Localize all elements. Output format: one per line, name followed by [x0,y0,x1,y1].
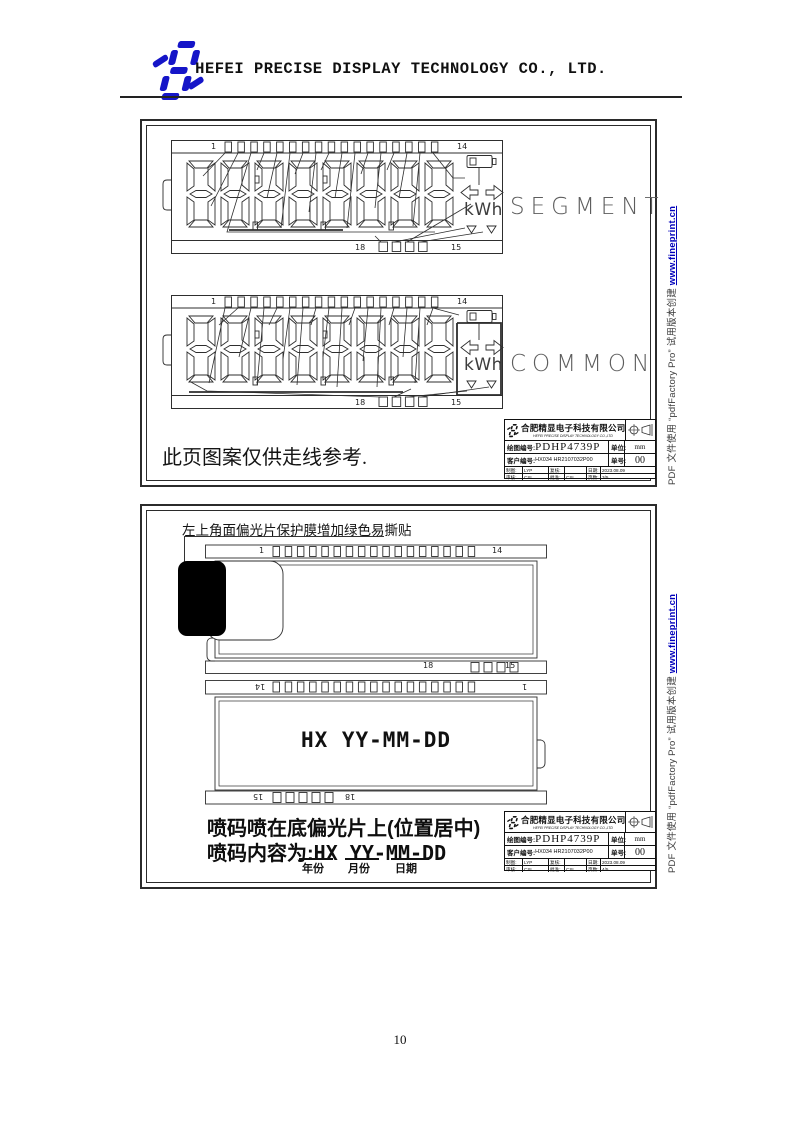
tb-cell: 页数: [586,866,600,872]
kwh-unit-label: kWh [464,202,503,219]
pin-label: 1 [259,546,264,555]
tb-cell: 日期: [586,859,600,865]
date-code-print-text: HX YY-MM-DD [205,728,547,752]
tb-cell: 日期: [586,467,600,473]
company-title: HEFEI PRECISE DISPLAY TECHNOLOGY CO., LT… [120,60,682,78]
pin-label: 15 [505,661,515,670]
battery-icon [467,156,496,168]
customer-no-label: 客户编号: [505,455,535,465]
lcd-common-drawing [161,295,505,409]
customer-no: HX034 HR2107032P00 [535,457,608,463]
day-label: 日期 [395,860,417,876]
tb-company-en: HEFEI PRECISE DISPLAY TECHNOLOGY CO.,LTD [529,825,617,829]
year-label: 年份 [302,860,324,876]
tb-cell: CSL [522,866,548,872]
annotation-underline [184,536,384,537]
projection-symbol-icon [628,815,654,829]
pin-label: 18 [423,661,433,670]
pin-label: 15 [451,243,461,252]
customer-no-label: 客户编号: [505,847,535,857]
watermark-link[interactable]: www.fineprint.cn [667,206,678,285]
pin-label: 1 [211,142,216,151]
tb-page-number: 3/5 [600,474,655,480]
arrow-icons [461,341,503,355]
tb-cell: LYP [522,467,548,473]
tb-company-cn: 合肥精显电子科技有限公司 [521,423,625,433]
tb-company-en: HEFEI PRECISE DISPLAY TECHNOLOGY CO.,LTD [529,433,617,437]
title-block-2: 合肥精显电子科技有限公司 HEFEI PRECISE DISPLAY TECHN… [504,811,656,871]
pdf-page: HEFEI PRECISE DISPLAY TECHNOLOGY CO., LT… [0,0,800,1131]
tb-cell: 制图: [505,467,522,473]
tb-cell: CSL [564,474,586,480]
tb-page-number: 4/5 [600,866,655,872]
tb-cell: 复核: [548,859,564,865]
inkjet-note-2-value: HX YY-MM-DD [314,841,446,865]
pdffactory-watermark: PDF 文件使用 “pdfFactory Pro” 试用版本创建 www.fin… [664,133,678,485]
common-label: COMMON [510,351,655,377]
tb-cell: CSL [564,866,586,872]
pin-label: 14 [457,297,467,306]
company-logo-small-icon [507,815,520,830]
lcd-segment-drawing [161,140,505,254]
pin-label: 1 [522,682,527,691]
watermark-text: PDF 文件使用 “pdfFactory Pro” 试用版本创建 [667,285,678,485]
battery-icon [467,311,496,323]
inkjet-note-2-label: 喷码内容为: [207,843,314,865]
tb-cell [564,467,586,473]
pin-label: 1 [211,297,216,306]
tb-cell: 批准: [548,866,564,872]
tb-cell: LYP [522,859,548,865]
lcd-segment-diagram: 1 14 18 15 kWh [171,140,503,254]
pin-label: 14 [492,546,502,555]
month-label: 月份 [348,860,370,876]
tb-cell: 2023.08.09 [600,859,655,865]
tb-cell: 批准: [548,474,564,480]
page-number: 10 [0,1032,800,1048]
projection-symbol-icon [628,423,654,437]
green-tear-sticker [178,561,226,636]
pin-label: 18 [355,243,365,252]
pin-label: 18 [355,398,365,407]
tb-cell: 2023.08.09 [600,467,655,473]
tb-cell: 复核: [548,467,564,473]
tb-cell: 审核: [505,866,522,872]
watermark-text: PDF 文件使用 “pdfFactory Pro” 试用版本创建 [667,673,678,873]
front-outline-drawing [175,542,547,674]
triangle-indicator-icons [467,381,496,388]
kwh-unit-label: kWh [464,357,503,374]
company-logo-small-icon [507,423,520,438]
customer-no: HX034 HR2107032P00 [535,849,608,855]
seven-segment-digits [187,316,453,382]
drawing-no-label: 绘图编号: [505,442,535,452]
order-value: 00 [624,454,655,466]
drawing-no: PDHP4739P [535,441,608,453]
back-outline-diagram: 14 1 15 18 HX YY-MM-DD [205,680,547,805]
tb-cell: 页数: [586,474,600,480]
pin-label: 14 [457,142,467,151]
title-block-1: 合肥精显电子科技有限公司 HEFEI PRECISE DISPLAY TECHN… [504,419,656,479]
arrow-icons [461,186,503,200]
unit-value: mm [624,441,655,453]
pin-label: 18 [345,792,355,801]
seven-segment-digits [187,161,453,227]
drawing-no-label: 绘图编号: [505,834,535,844]
watermark-link[interactable]: www.fineprint.cn [667,594,678,673]
tb-cell [564,859,586,865]
tb-cell: CSL [522,474,548,480]
pin-label: 14 [255,682,265,691]
drawing-no: PDHP4739P [535,833,608,845]
lcd-common-diagram: 1 14 18 15 kWh [171,295,503,409]
header-divider [120,96,682,98]
unit-value: mm [624,833,655,845]
pdffactory-watermark: PDF 文件使用 “pdfFactory Pro” 试用版本创建 www.fin… [664,521,678,873]
front-outline-diagram: 1 14 18 15 [175,542,547,674]
frame1-note: 此页图案仅供走线参考. [162,441,367,470]
pin-label: 15 [451,398,461,407]
tb-company-cn: 合肥精显电子科技有限公司 [521,815,625,825]
segment-label: SEGMENT [510,194,665,220]
pin-label: 15 [253,792,263,801]
tb-cell: 制图: [505,859,522,865]
tb-cell: 审核: [505,474,522,480]
order-value: 00 [624,846,655,858]
